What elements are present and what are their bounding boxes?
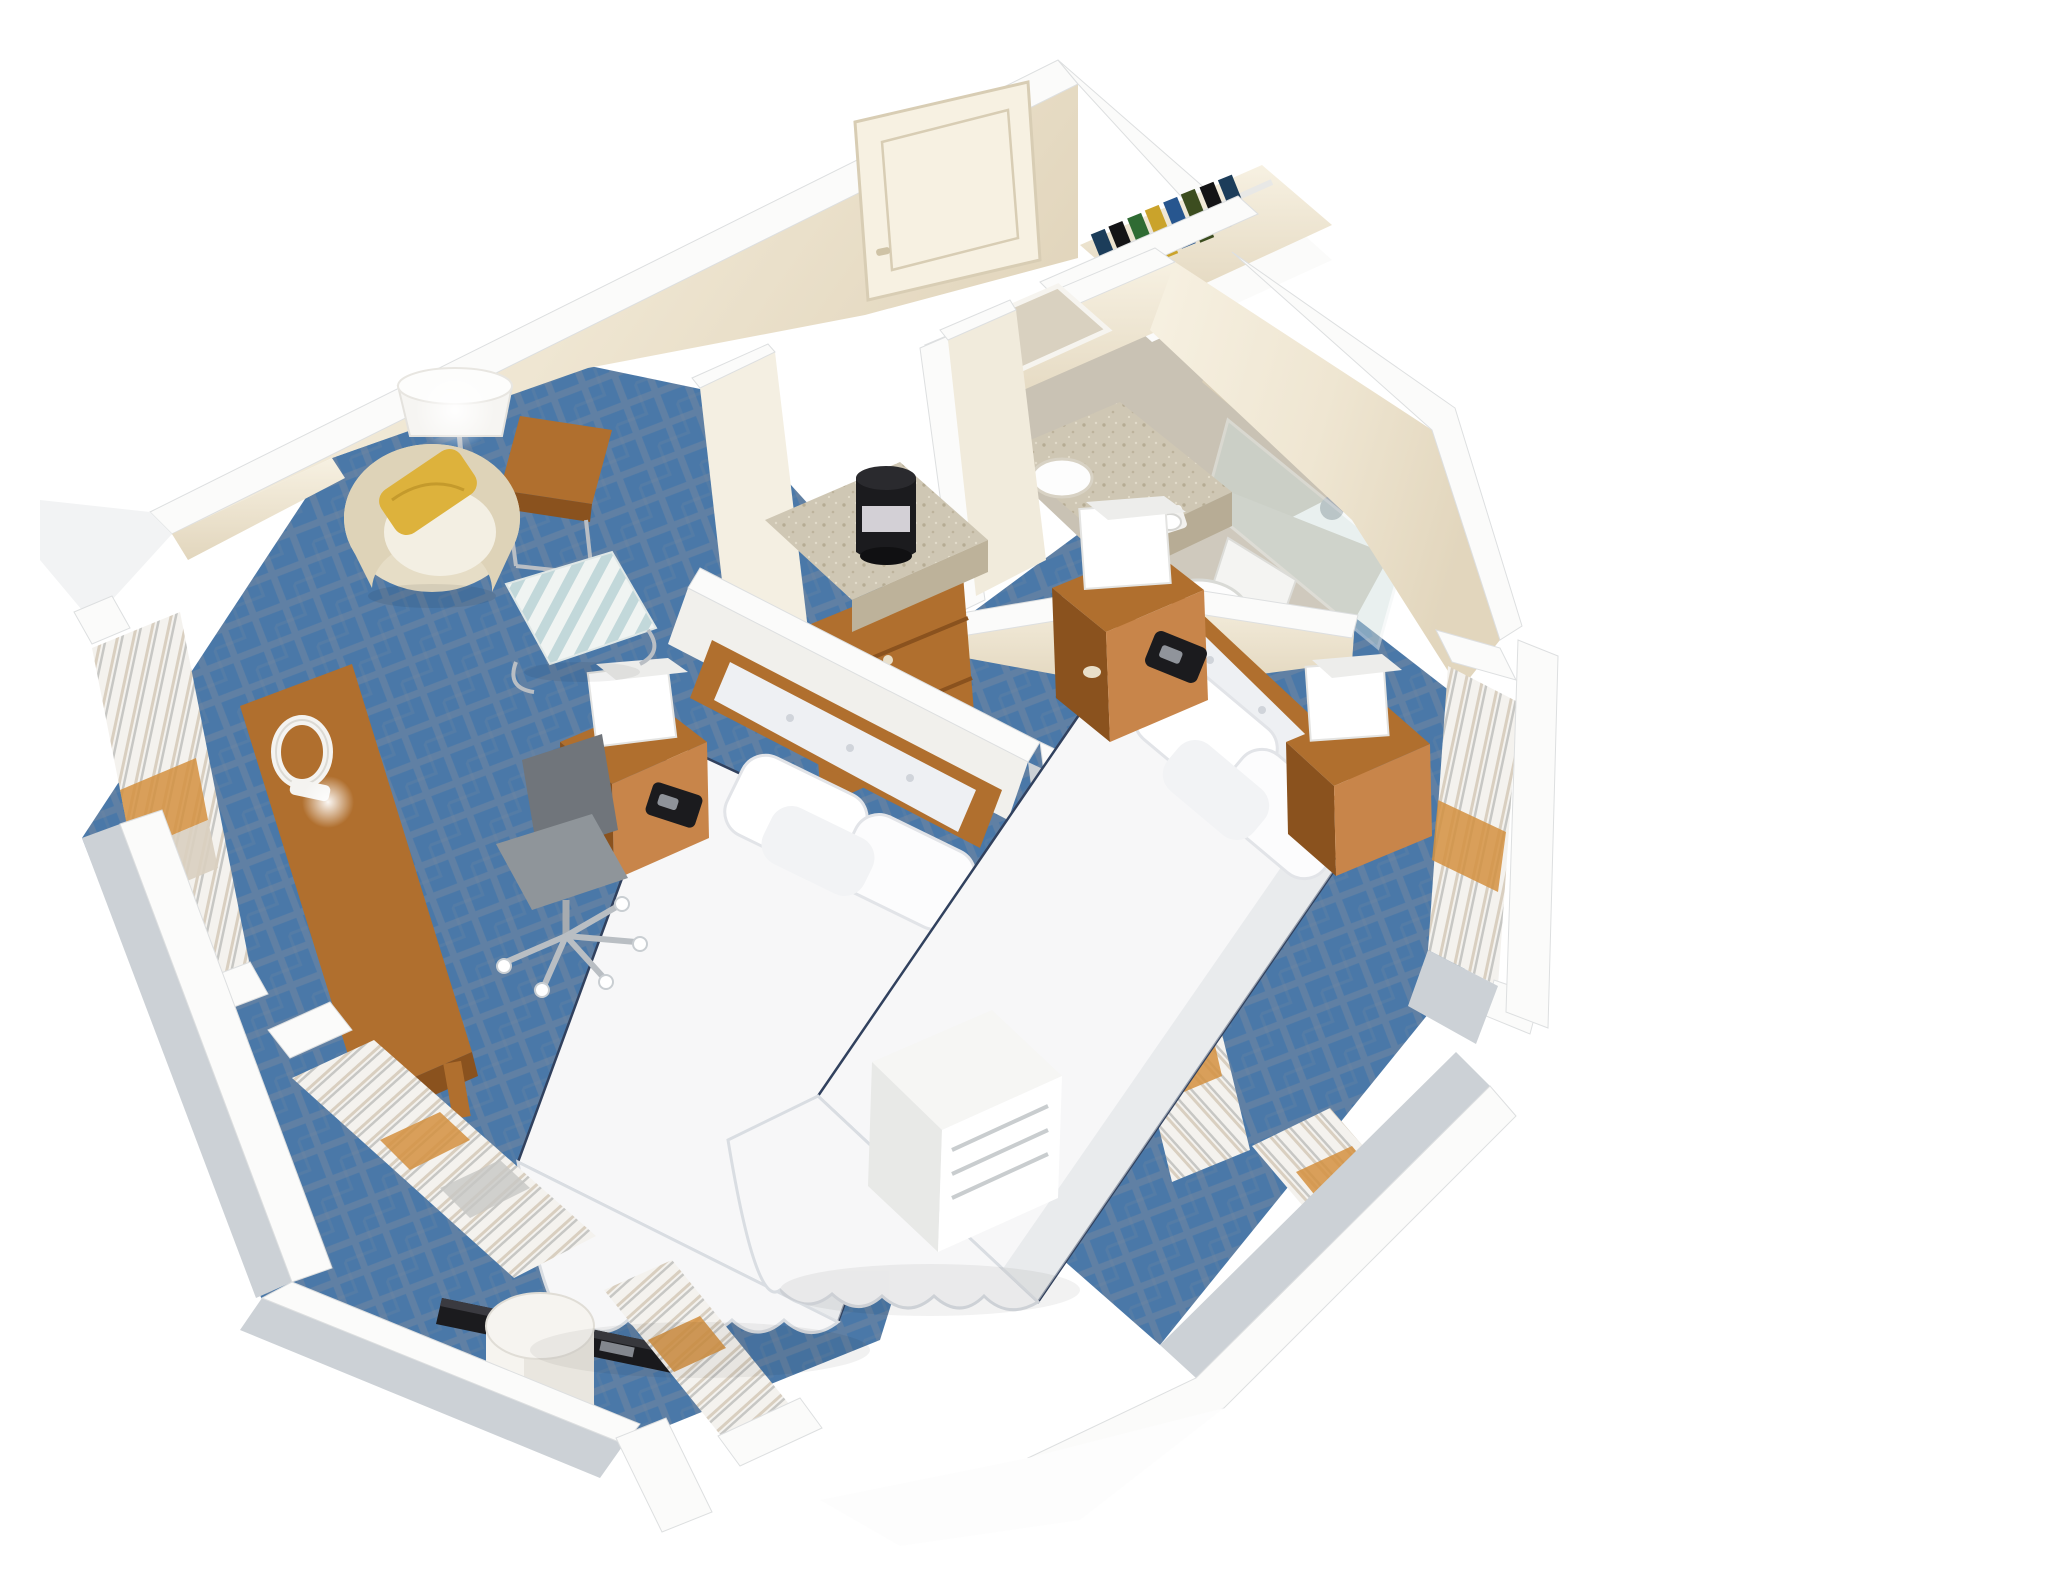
entry-door xyxy=(855,82,1040,300)
floorplan-stage xyxy=(0,0,2048,1576)
barrel-armchair xyxy=(344,444,520,608)
vanity-sink xyxy=(1032,459,1092,497)
se-exterior-white xyxy=(820,1408,1224,1546)
corner-post xyxy=(616,1418,712,1532)
east-outer-cap xyxy=(1506,640,1558,1028)
floorplan-render xyxy=(0,0,2048,1576)
ice-bucket xyxy=(856,466,916,565)
